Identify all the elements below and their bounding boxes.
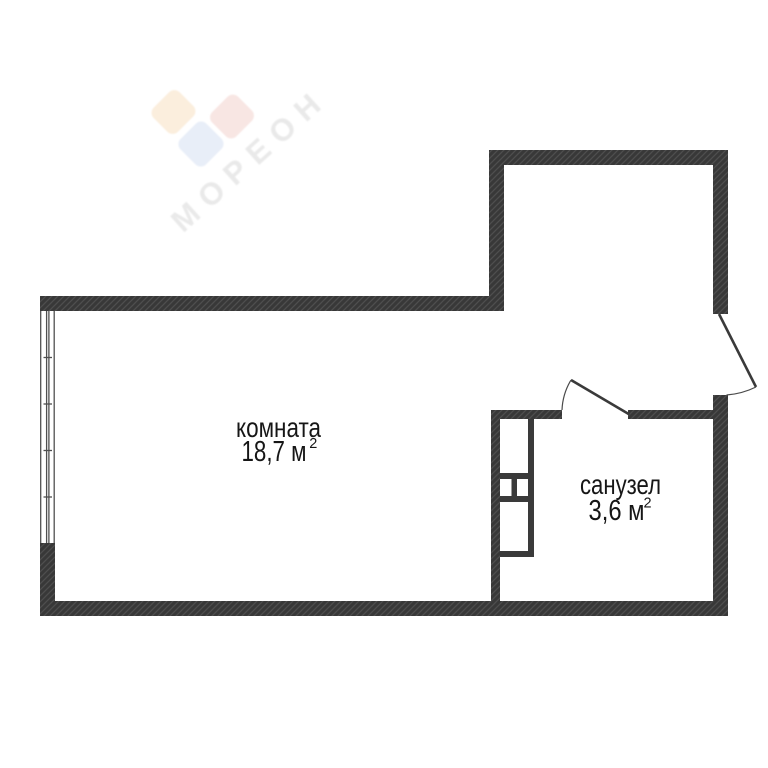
svg-text:3,6 м: 3,6 м [589,495,645,527]
svg-text:2: 2 [643,496,651,512]
svg-text:2: 2 [309,436,317,452]
svg-text:18,7 м: 18,7 м [242,436,307,468]
